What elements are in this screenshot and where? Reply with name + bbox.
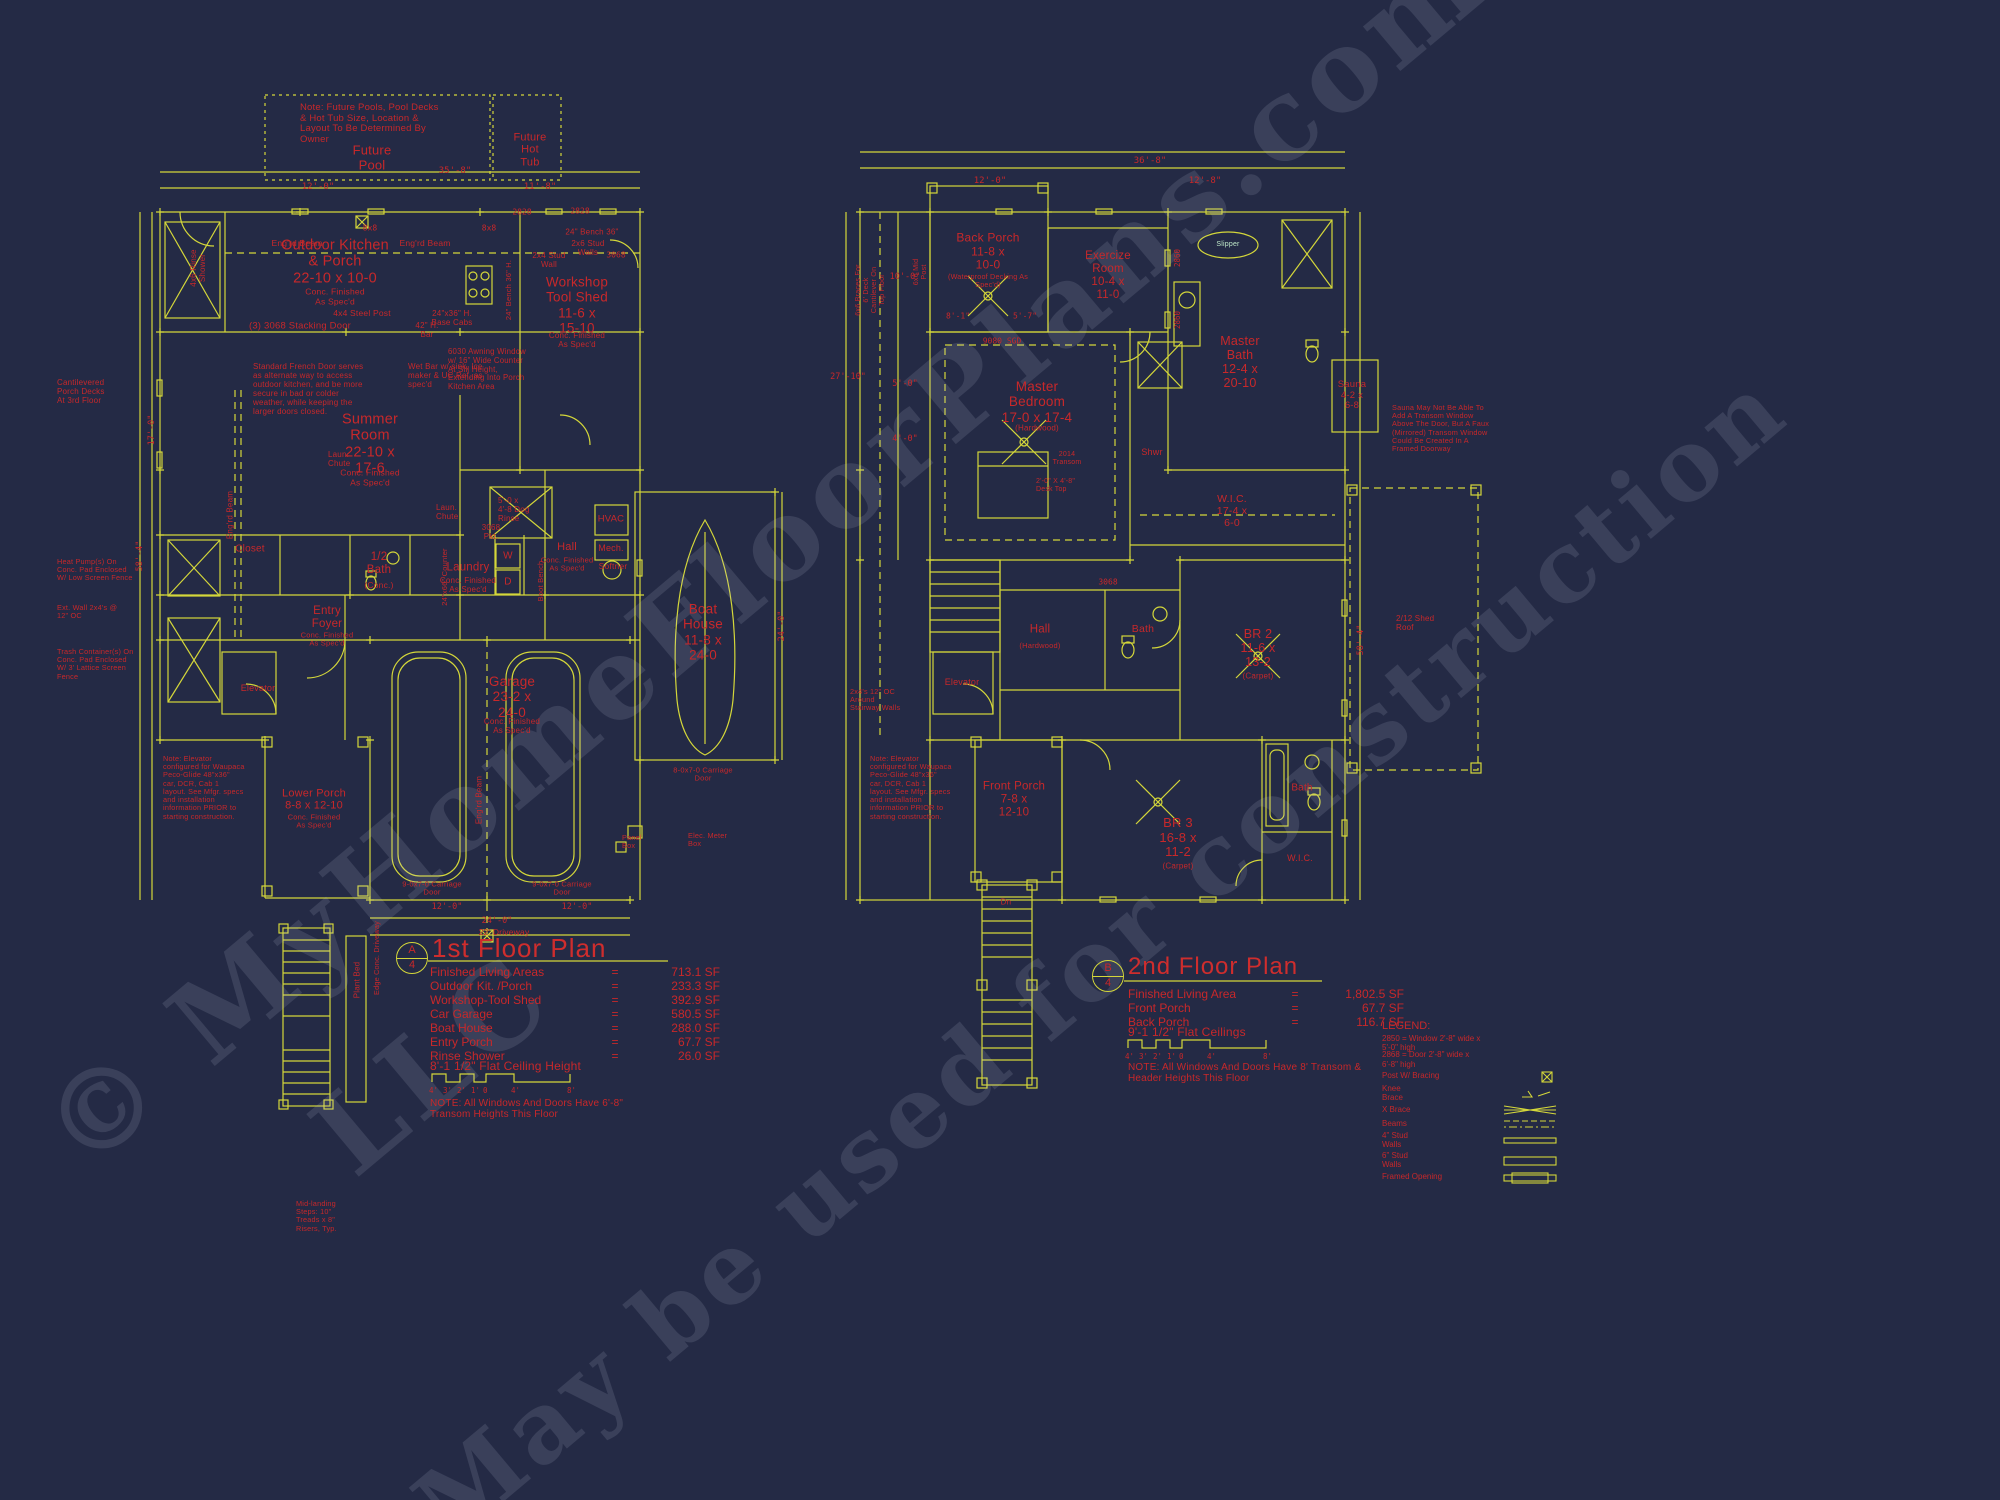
- legend-label: Post W/ Bracing: [1382, 1072, 1439, 1081]
- summary-value: 67.7 SF: [632, 1036, 720, 1048]
- note-trash: Trash Container(s) On Conc. Pad Enclosed…: [57, 648, 134, 681]
- dim-top-total: 35'-8": [439, 166, 472, 176]
- code-carriage-right: 9-0x7-0 Carriage Door: [532, 881, 591, 898]
- note-panel-box: Panel Box: [622, 834, 642, 850]
- summary-row: Rinse Shower=26.0 SF: [430, 1050, 720, 1062]
- room-label-back-porch: Back Porch 11-8 x 10-0: [956, 232, 1019, 273]
- code-boat-door: 8-0x7-0 Carriage Door: [673, 767, 732, 784]
- stud6-symbol-icon: [1502, 1155, 1558, 1167]
- legend-label: 6" Stud Walls: [1382, 1152, 1408, 1170]
- summary-value: 713.1 SF: [632, 966, 720, 978]
- room-finish-lower-porch: Conc. Finished As Spec'd: [288, 814, 341, 831]
- legend-row-xbrace: X Brace: [1382, 1104, 1558, 1116]
- room-finish-half-bath: (Conc.): [364, 581, 393, 591]
- plan1-garage-cars: [392, 652, 580, 882]
- code-3068-p2: 3068: [1098, 577, 1117, 586]
- summary-row: Car Garage=580.5 SF: [430, 1008, 720, 1020]
- dim-garage-total: 24'-0": [482, 917, 513, 927]
- plan2-doors-windows: [996, 209, 1347, 902]
- scale-tick: 1': [471, 1086, 480, 1095]
- dim-left-mid: 17'-0": [148, 415, 158, 446]
- code-2828-b: 2828: [570, 206, 589, 215]
- section-marker-2-number: 4: [1093, 977, 1123, 990]
- room-label-laundry: Laundry: [447, 562, 490, 575]
- note-stacking-door: (3) 3068 Stacking Door: [249, 322, 351, 333]
- cad-linework: [0, 0, 2000, 1500]
- room-label-wic-master: W.I.C. 17-4 x 6-0: [1217, 494, 1247, 530]
- legend-row-framed: Framed Opening: [1382, 1172, 1558, 1184]
- note-cantilever: Cantilevered Porch Decks At 3rd Floor: [57, 378, 105, 405]
- summary-label: Back Porch: [1128, 1016, 1278, 1028]
- room-finish-summer-room: Conc. Finished As Spec'd: [340, 468, 400, 487]
- code-8x8-b: 8x8: [482, 223, 496, 232]
- legend-door-spec: 2868 = Door 2'-8" wide x 6'-8" high: [1382, 1050, 1558, 1068]
- knee-brace-symbol-icon: [1502, 1088, 1558, 1100]
- code-carriage-left: 9-0x7-0 Carriage Door: [402, 881, 461, 898]
- dim-garage-right: 12'-0": [562, 903, 593, 913]
- label-rinse-shower: 4x6 Rinse Shower: [189, 249, 207, 286]
- summary-row: Back Porch=116.7 SF: [1128, 1016, 1404, 1028]
- code-3068-pkt: 3068 Pkt.: [482, 523, 501, 541]
- note-counter24: 24"x66" Counter: [441, 548, 449, 606]
- note-engrd-beam-a: Eng'rd Beam: [271, 239, 322, 249]
- beams-symbol-icon: [1502, 1118, 1558, 1130]
- summary-row: Workshop-Tool Shed=392.9 SF: [430, 994, 720, 1006]
- summary-eq: =: [598, 994, 632, 1006]
- dim-p2-right: 58'-4": [1357, 625, 1367, 656]
- summary-label: Finished Living Area: [1128, 988, 1278, 1000]
- section-marker-1-number: 4: [397, 959, 427, 972]
- room-finish-br3: (Carpet): [1163, 861, 1194, 870]
- room-label-boat-house: Boat House 11-8 x 24-0: [683, 602, 723, 663]
- room-label-shwr: Shwr: [1141, 447, 1162, 457]
- note-engrd-beam-b: Eng'rd Beam: [399, 239, 450, 249]
- blueprint-canvas: © MyHomeFloorPlans.com LLC May be used f…: [0, 0, 2000, 1500]
- summary-eq: =: [598, 1022, 632, 1034]
- section-marker-2-letter: B: [1093, 961, 1123, 977]
- summary-label: Workshop-Tool Shed: [430, 994, 598, 1006]
- label-softner: Softner: [599, 562, 628, 572]
- label-boot-bench: Boot Bench: [537, 561, 545, 602]
- note-steel-post: 4x4 Steel Post: [333, 309, 391, 319]
- scale-tick: 4': [1207, 1052, 1216, 1061]
- note-plant-bed: Plant Bed: [352, 962, 361, 999]
- room-label-master-bedroom: Master Bedroom 17-0 x 17-4: [1002, 379, 1073, 425]
- note-heat-pump: Heat Pump(s) On Conc. Pad Enclosed W/ Lo…: [57, 558, 133, 583]
- scale-tick: 0: [483, 1086, 488, 1095]
- room-label-entry-foyer: Entry Foyer: [312, 605, 342, 631]
- legend-row-knee: Knee Brace: [1382, 1085, 1558, 1103]
- summary-eq: =: [598, 1008, 632, 1020]
- label-mech: Mech.: [598, 543, 624, 553]
- room-finish-hall: Conc. Finished As Spec'd: [541, 557, 594, 574]
- scale-tick: 0: [1179, 1052, 1184, 1061]
- summary-eq: =: [598, 966, 632, 978]
- dim-p2-top-right: 12'-8": [1189, 176, 1222, 186]
- label-dryer: D: [504, 576, 511, 587]
- note-french-door: Standard French Door serves as alternate…: [253, 362, 363, 416]
- room-label-br3: BR 3 16-8 x 11-2: [1159, 816, 1196, 860]
- room-label-br2: BR 2 11-6 x 13-2: [1240, 627, 1275, 669]
- summary-row: Finished Living Area=1,802.5 SF: [1128, 988, 1404, 1000]
- summary-value: 392.9 SF: [632, 994, 720, 1006]
- room-finish-master-bedroom: (Hardwood): [1015, 423, 1059, 432]
- code-2860-b: 2860: [1174, 311, 1182, 329]
- summary-row: Outdoor Kit. /Porch=233.3 SF: [430, 980, 720, 992]
- label-dog-rinse: 5'-0 x 4'-8 Dog Rinse: [498, 496, 530, 523]
- scale-tick: 4': [429, 1086, 438, 1095]
- dim-p2-10: 10'-0": [890, 273, 921, 283]
- dim-p2-57: 5'-7": [1013, 311, 1037, 320]
- legend-label: Knee Brace: [1382, 1085, 1403, 1103]
- note-desk-top: 2'-0" X 4'-8" Desk Top: [1036, 478, 1075, 494]
- note-shed-roof: 2/12 Shed Roof: [1396, 614, 1434, 632]
- note-stud24: 2x4 Stud Wall: [532, 251, 565, 269]
- note-future: Note: Future Pools, Pool Decks & Hot Tub…: [300, 103, 439, 146]
- room-label-garage: Garage 23-2 x 24-0: [489, 674, 535, 720]
- summary-value: 288.0 SF: [632, 1022, 720, 1034]
- code-3068-workshop: 3068: [606, 250, 625, 259]
- scale-tick: 8': [567, 1086, 576, 1095]
- room-label-lower-porch: Lower Porch 8-8 x 12-10: [282, 788, 346, 813]
- room-label-hall: Hall: [557, 541, 577, 553]
- summary-eq: =: [598, 1036, 632, 1048]
- dim-p2-top-left: 12'-0": [974, 176, 1007, 186]
- post-symbol-icon: [1502, 1071, 1558, 1083]
- legend-label: 4" Stud Walls: [1382, 1132, 1408, 1150]
- room-label-bath2: Bath: [1132, 624, 1154, 636]
- note-braces: 6x6 Braces For 6' Deck Cantilever On Top…: [854, 264, 887, 316]
- dim-left-total: 58'-4": [136, 541, 146, 572]
- plan1-transom-note: NOTE: All Windows And Doors Have 6'-8" T…: [430, 1098, 623, 1121]
- summary-row: Entry Porch=67.7 SF: [430, 1036, 720, 1048]
- room-label-wic3: W.I.C.: [1287, 853, 1313, 863]
- room-label-workshop: Workshop Tool Shed 11-6 x 15-10: [546, 275, 608, 336]
- note-edge-conc: Edge Conc. Driveway: [373, 921, 381, 995]
- room-finish-outdoor-kitchen: Conc. Finished As Spec'd: [305, 287, 365, 306]
- dim-p2-5: 5'-0": [892, 380, 918, 390]
- room-label-hall2: Hall: [1030, 624, 1051, 637]
- note-sauna: Sauna May Not Be Able To Add A Transom W…: [1392, 404, 1489, 453]
- room-label-bath3: Bath: [1291, 782, 1312, 793]
- summary-eq: =: [1278, 1002, 1312, 1014]
- room-label-elevator2: Elevator: [945, 677, 980, 687]
- summary-eq: =: [1278, 988, 1312, 1000]
- section-marker-2: B 4: [1092, 960, 1124, 992]
- plan2-fixtures: [933, 220, 1332, 826]
- legend-row-stud6: 6" Stud Walls: [1382, 1152, 1558, 1170]
- summary-value: 580.5 SF: [632, 1008, 720, 1020]
- dim-top-left: 12'-0": [302, 182, 335, 192]
- legend-row-stud4: 4" Stud Walls: [1382, 1132, 1558, 1150]
- room-label-front-porch: Front Porch 7-8 x 12-10: [983, 781, 1045, 820]
- note-bar42: 42" H. Bar: [415, 321, 438, 339]
- legend-label: X Brace: [1382, 1106, 1410, 1115]
- plan1-summary: Finished Living Areas=713.1 SF Outdoor K…: [430, 966, 720, 1062]
- summary-value: 67.7 SF: [1312, 1002, 1404, 1014]
- note-laun-chute-a: Laun. Chute: [328, 450, 350, 468]
- summary-row: Front Porch=67.7 SF: [1128, 1002, 1404, 1014]
- plan2-master-bedroom: [945, 345, 1335, 540]
- note-elevator-2: Note: Elevator configured for Waupaca Pe…: [870, 755, 952, 821]
- note-engrd-beam-vert1: Eng'rd Beam: [225, 491, 234, 539]
- label-hvac: HVAC: [598, 515, 625, 526]
- room-label-closet: Closet: [235, 543, 265, 554]
- summary-label: Finished Living Areas: [430, 966, 598, 978]
- summary-value: 26.0 SF: [632, 1050, 720, 1062]
- room-label-master-bath: Master Bath 12-4 x 20-10: [1220, 334, 1259, 391]
- note-stair-walls: 2x4's 12" OC Around Stairway Walls: [850, 688, 900, 713]
- room-finish-entry-foyer: Conc. Finished As Spec'd: [301, 632, 354, 649]
- legend-label: Beams: [1382, 1120, 1407, 1129]
- plan2-stairs: [930, 560, 1032, 1085]
- note-laun-chute-b: Laun. Chute: [436, 503, 458, 521]
- code-2828-a: 2828: [512, 207, 531, 216]
- room-label-elevator: Elevator: [241, 683, 276, 693]
- scale-tick: 3': [443, 1086, 452, 1095]
- scale-tick: 4': [1125, 1052, 1134, 1061]
- scale-tick: 3': [1139, 1052, 1148, 1061]
- room-label-exercise: Exercize Room 10-4 x 11-0: [1085, 250, 1131, 302]
- code-9080-sgd: 9080 SGD: [983, 336, 1022, 345]
- room-finish-workshop: Conc. Finished As Spec'd: [549, 331, 605, 349]
- code-2014-transom: 2014 Transom: [1053, 451, 1082, 467]
- section-marker-1: A 4: [396, 942, 428, 974]
- section-marker-1-letter: A: [397, 943, 427, 959]
- summary-eq: =: [598, 1050, 632, 1062]
- scale-tick: 8': [1263, 1052, 1272, 1061]
- room-finish-hall2: (Hardwood): [1019, 642, 1060, 650]
- label-future-pool: Future Pool: [353, 143, 392, 172]
- dim-p2-top-total: 36'-8": [1134, 156, 1167, 166]
- framed-opening-symbol-icon: [1502, 1172, 1558, 1184]
- note-elec-meter: Elec. Meter Box: [688, 832, 727, 848]
- note-elevator-1: Note: Elevator configured for Waupaca Pe…: [163, 755, 245, 821]
- note-bench24: 24" Bench 36": [565, 227, 618, 236]
- label-slipper-tub: Slipper: [1216, 241, 1239, 249]
- legend: LEGEND: 2850 = Window 2'-8" wide x 5'-0"…: [1382, 1020, 1558, 1184]
- label-washer: W: [503, 550, 513, 561]
- legend-title: LEGEND:: [1382, 1020, 1558, 1032]
- plan1-beams: [225, 253, 640, 935]
- legend-row-beams: Beams: [1382, 1118, 1558, 1130]
- code-2860-a: 2860: [1174, 249, 1182, 267]
- scale-tick: 4': [511, 1086, 520, 1095]
- legend-label: Framed Opening: [1382, 1173, 1442, 1182]
- plan1-stairs-entry: [283, 928, 366, 1106]
- summary-value: 233.3 SF: [632, 980, 720, 992]
- dim-p2-4: 4'-0": [892, 435, 918, 445]
- plan2-transom-note: NOTE: All Windows And Doors Have 8' Tran…: [1128, 1062, 1361, 1085]
- scale-tick: 2': [457, 1086, 466, 1095]
- room-finish-back-porch: (Waterproof Decking As Spec'd): [948, 273, 1028, 289]
- room-finish-br2: (Carpet): [1243, 671, 1274, 680]
- summary-label: Entry Porch: [430, 1036, 598, 1048]
- summary-row: Finished Living Areas=713.1 SF: [430, 966, 720, 978]
- dim-p2-27: 27'-10": [830, 373, 866, 383]
- note-mid-landing: Mid-landing Steps: 10" Treads x 8" Riser…: [296, 1200, 337, 1233]
- dim-garage-left: 12'-0": [432, 903, 463, 913]
- scale-tick: 1': [1167, 1052, 1176, 1061]
- note-ext-wall: Ext. Wall 2x4's @ 12" OC: [57, 604, 117, 620]
- plan2-summary: Finished Living Area=1,802.5 SF Front Po…: [1128, 988, 1404, 1028]
- scale-tick: 2': [1153, 1052, 1162, 1061]
- label-future-hot-tub: Future Hot Tub: [514, 131, 547, 168]
- legend-row-post: Post W/ Bracing: [1382, 1071, 1558, 1083]
- label-dn: Dn: [1001, 897, 1012, 906]
- summary-label: Car Garage: [430, 1008, 598, 1020]
- x-brace-symbol-icon: [1502, 1104, 1558, 1116]
- plan2-title: 2nd Floor Plan: [1128, 953, 1298, 981]
- summary-label: Rinse Shower: [430, 1050, 598, 1062]
- note-bench-vert: 24" Bench 36" H.: [505, 260, 513, 320]
- summary-value: 1,802.5 SF: [1312, 988, 1404, 1000]
- note-stud-walls: 2x6 Stud Walls: [571, 239, 604, 257]
- summary-label: Front Porch: [1128, 1002, 1278, 1014]
- room-finish-garage: Conc. Finished As Spec'd: [484, 717, 540, 735]
- note-engrd-beam-vert2: Eng'rd Beam: [474, 776, 483, 824]
- summary-eq: =: [598, 980, 632, 992]
- stud4-symbol-icon: [1502, 1136, 1558, 1146]
- plan1-title: 1st Floor Plan: [432, 933, 606, 964]
- dim-top-right: 11'-8": [524, 182, 557, 192]
- note-wet-bar: Wet Bar w/ sink, Ice maker & UC Ref. as …: [408, 362, 483, 389]
- summary-label: Outdoor Kit. /Porch: [430, 980, 598, 992]
- room-label-half-bath: 1/2 Bath: [367, 551, 391, 577]
- summary-row: Boat House=288.0 SF: [430, 1022, 720, 1034]
- dim-boat-right: 24'-0": [778, 611, 788, 642]
- plan2-walls: [860, 186, 1478, 900]
- code-8x8-a: 8x8: [363, 223, 377, 232]
- summary-label: Boat House: [430, 1022, 598, 1034]
- dim-p2-81: 8'-1": [946, 311, 970, 320]
- summary-eq: =: [1278, 1016, 1312, 1028]
- room-label-sauna: Sauna 4-2 x 6-8: [1338, 380, 1366, 412]
